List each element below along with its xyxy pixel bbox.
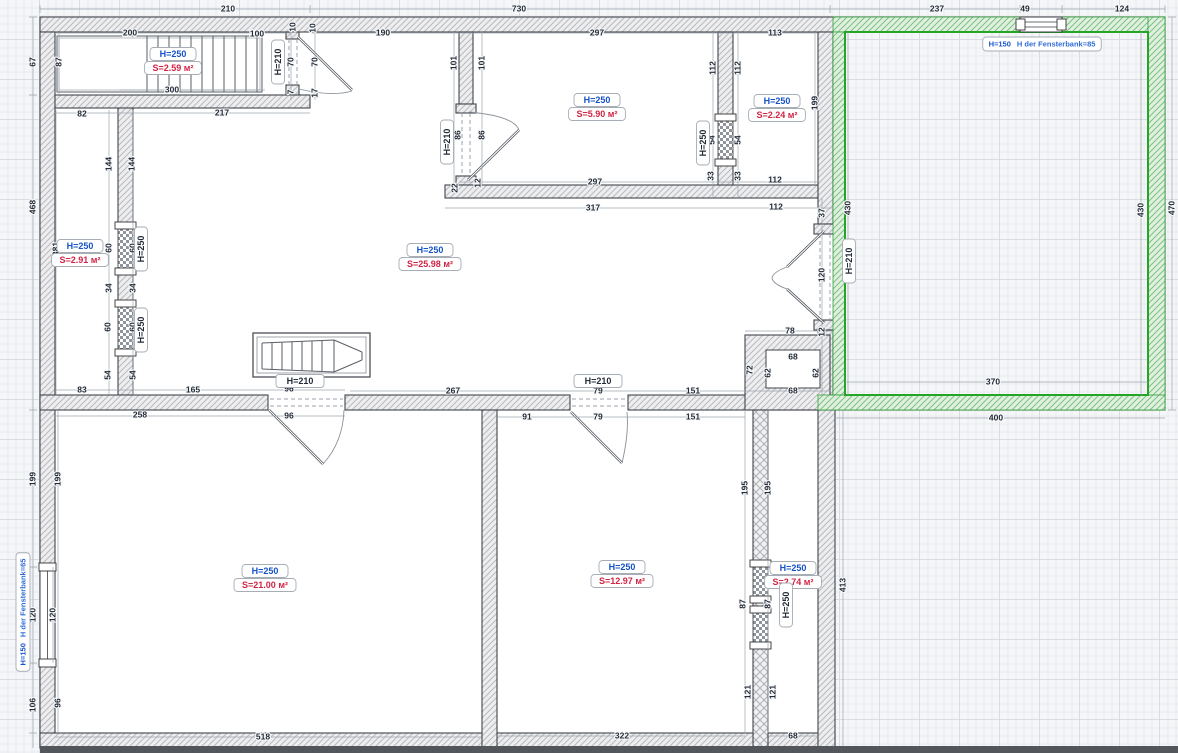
dimension-label: 413 [837, 578, 847, 592]
dimension-label: 237 [930, 3, 944, 13]
dimension-label: 121 [742, 685, 752, 699]
dimension-label: 10 [287, 22, 297, 32]
dimension-label: 199 [27, 472, 37, 486]
dimension-label: 10 [307, 23, 317, 33]
room-area-label: S=21.00 м² [242, 580, 288, 590]
room-height-label: H=250 [584, 95, 611, 105]
floor-plan-canvas[interactable]: 2107302374912420010030019029729731711311… [0, 0, 1178, 753]
door-post [456, 104, 476, 113]
wall-bottom-rooms-divider[interactable] [482, 410, 497, 748]
dimension-label: 370 [986, 376, 1000, 386]
staircase-central[interactable] [253, 333, 370, 377]
dimension-label: 67 [27, 57, 37, 67]
dimension-label: 151 [686, 411, 700, 421]
svg-text:H=250: H=250 [781, 592, 791, 619]
dimension-label: 112 [769, 201, 783, 211]
wall-main-bottom-divider[interactable] [40, 395, 268, 410]
svg-text:H=150H der Fensterbank=85: H=150H der Fensterbank=85 [989, 39, 1096, 48]
wall-green-room-left[interactable] [818, 32, 833, 224]
canvas-bottom-edge [40, 746, 1178, 753]
svg-text:H=250: H=250 [136, 236, 146, 263]
height-label-vertical[interactable]: H=210 [441, 120, 454, 164]
wall-partition-crosshatched[interactable] [753, 646, 768, 748]
dimension-label: 112 [707, 61, 717, 75]
dimension-label: 195 [739, 481, 749, 495]
dimension-label: 120 [816, 268, 826, 282]
dimension-label: 72 [744, 365, 754, 375]
dimension-label: 297 [590, 27, 604, 37]
height-label-vertical[interactable]: H=210 [272, 40, 285, 84]
dimension-label: 101 [448, 56, 458, 70]
wall-bottom-exterior[interactable] [40, 733, 835, 748]
dimension-label: 62 [762, 368, 772, 378]
dimension-label: 86 [476, 130, 486, 140]
dimension-label: 113 [768, 27, 782, 37]
wall-top-middle-stub[interactable] [459, 32, 473, 104]
dimension-label: 468 [27, 200, 37, 214]
wall-top-rooms-bottom[interactable] [445, 185, 833, 198]
height-label-vertical[interactable]: H=250 [135, 227, 148, 271]
room-height-label: H=250 [609, 562, 636, 572]
dimension-label: 195 [762, 481, 772, 495]
room-area-label: S=2.91 м² [60, 255, 101, 265]
dimension-label: 100 [250, 28, 264, 38]
room-area-label: S=25.98 м² [407, 259, 453, 269]
height-label-vertical[interactable]: H=210 [843, 239, 856, 283]
dimension-label: 121 [767, 685, 777, 699]
window-green-room-top[interactable] [1016, 17, 1066, 32]
dimension-label: 34 [127, 283, 137, 293]
dimension-label: 470 [1166, 201, 1176, 215]
dimension-label: 144 [103, 157, 113, 171]
dimension-label: 124 [1115, 3, 1129, 13]
door-height-label[interactable]: H=210 [276, 375, 324, 388]
wall-main-bottom-divider[interactable] [345, 395, 570, 410]
dimension-label: 12 [472, 178, 482, 188]
svg-text:H=250: H=250 [136, 317, 146, 344]
dimension-label: 70 [285, 57, 295, 67]
room-area-label: S=12.97 м² [599, 576, 645, 586]
dimension-label: 22 [449, 183, 459, 193]
svg-text:H=210: H=210 [273, 49, 283, 76]
dimension-label: 112 [732, 61, 742, 75]
dimension-label: 54 [102, 370, 112, 380]
dimension-label: 199 [52, 472, 62, 486]
dimension-label: 68 [788, 730, 798, 740]
room-height-label: H=250 [417, 245, 444, 255]
room-area-label: S=5.90 м² [577, 109, 618, 119]
dimension-label: 68 [788, 385, 798, 395]
dimension-label: 297 [588, 176, 602, 186]
dimension-label: 120 [47, 608, 57, 622]
dimension-label: 7 [285, 89, 295, 94]
dimension-label: 300 [165, 84, 179, 94]
dimension-label: 70 [309, 57, 319, 67]
dimension-label: 87 [737, 599, 747, 609]
dimension-label: 518 [256, 731, 270, 741]
svg-text:H=210: H=210 [287, 376, 314, 386]
room-area-label: S=2.59 м² [153, 63, 194, 73]
dimension-label: 34 [103, 283, 113, 293]
dimension-label: 17 [309, 88, 319, 98]
dimension-label: 190 [376, 27, 390, 37]
room-area-label: S=2.74 м² [773, 577, 814, 587]
room-height-label: H=250 [252, 566, 279, 576]
height-label-vertical[interactable]: H=250 [135, 308, 148, 352]
dimension-label: 37 [816, 208, 826, 218]
dimension-label: 217 [215, 107, 229, 117]
dimension-label: 60 [103, 243, 113, 253]
dimension-label: 96 [284, 410, 294, 420]
dimension-label: 12 [816, 327, 826, 337]
window-sill-label[interactable]: H=150H der Fensterbank=85 [983, 37, 1102, 51]
dimension-label: 400 [989, 412, 1003, 422]
dimension-label: 144 [126, 157, 136, 171]
door-height-label[interactable]: H=210 [574, 375, 622, 388]
svg-text:H=210: H=210 [844, 248, 854, 275]
room-height-label: H=250 [780, 563, 807, 573]
dimension-label: 49 [1020, 3, 1030, 13]
dimension-label: 258 [133, 409, 147, 419]
dimension-label: 78 [785, 325, 795, 335]
room-area-label: S=2.24 м² [757, 110, 798, 120]
dimension-label: 267 [446, 385, 460, 395]
dimension-label: 165 [186, 384, 200, 394]
dimension-label: 106 [27, 698, 37, 712]
svg-text:H=210: H=210 [442, 129, 452, 156]
dimension-label: 322 [615, 730, 629, 740]
dimension-label: 730 [512, 3, 526, 13]
dimension-label: 79 [593, 411, 603, 421]
dimension-label: 62 [810, 368, 820, 378]
dimension-label: 83 [77, 384, 87, 394]
room-height-label: H=250 [160, 49, 187, 59]
room-height-label: H=250 [764, 96, 791, 106]
dimension-label: 101 [476, 56, 486, 70]
dimension-label: 54 [732, 135, 742, 145]
dimension-label: 60 [102, 322, 112, 332]
dimension-label: 54 [127, 370, 137, 380]
svg-text:H=250: H=250 [698, 130, 708, 157]
dimension-label: 200 [123, 27, 137, 37]
dimension-label: 87 [762, 599, 772, 609]
dimension-label: 87 [53, 57, 63, 67]
dimension-label: 82 [77, 108, 87, 118]
dimension-label: 33 [705, 171, 715, 181]
dimension-label: 430 [842, 201, 852, 215]
height-label-vertical[interactable]: H=250 [780, 583, 793, 627]
dimension-label: 96 [52, 698, 62, 708]
dimension-label: 210 [221, 3, 235, 13]
svg-text:H=210: H=210 [585, 376, 612, 386]
wall-staircase-bottom[interactable] [55, 95, 310, 108]
dimension-label: 33 [732, 171, 742, 181]
room-height-label: H=250 [67, 241, 94, 251]
window-sill-label[interactable]: H=150H der Fensterbank=65 [16, 553, 30, 672]
dimension-label: 199 [809, 96, 819, 110]
height-label-vertical[interactable]: H=250 [697, 121, 710, 165]
dimension-label: 317 [586, 202, 600, 212]
svg-text:H=150H der Fensterbank=65: H=150H der Fensterbank=65 [18, 559, 27, 666]
dimension-label: 112 [768, 174, 782, 184]
dimension-label: 151 [686, 385, 700, 395]
dimension-label: 91 [522, 411, 532, 421]
dimension-label: 68 [788, 351, 798, 361]
wall-top-rooms-divider[interactable] [718, 32, 733, 117]
dimension-label: 430 [1135, 203, 1145, 217]
